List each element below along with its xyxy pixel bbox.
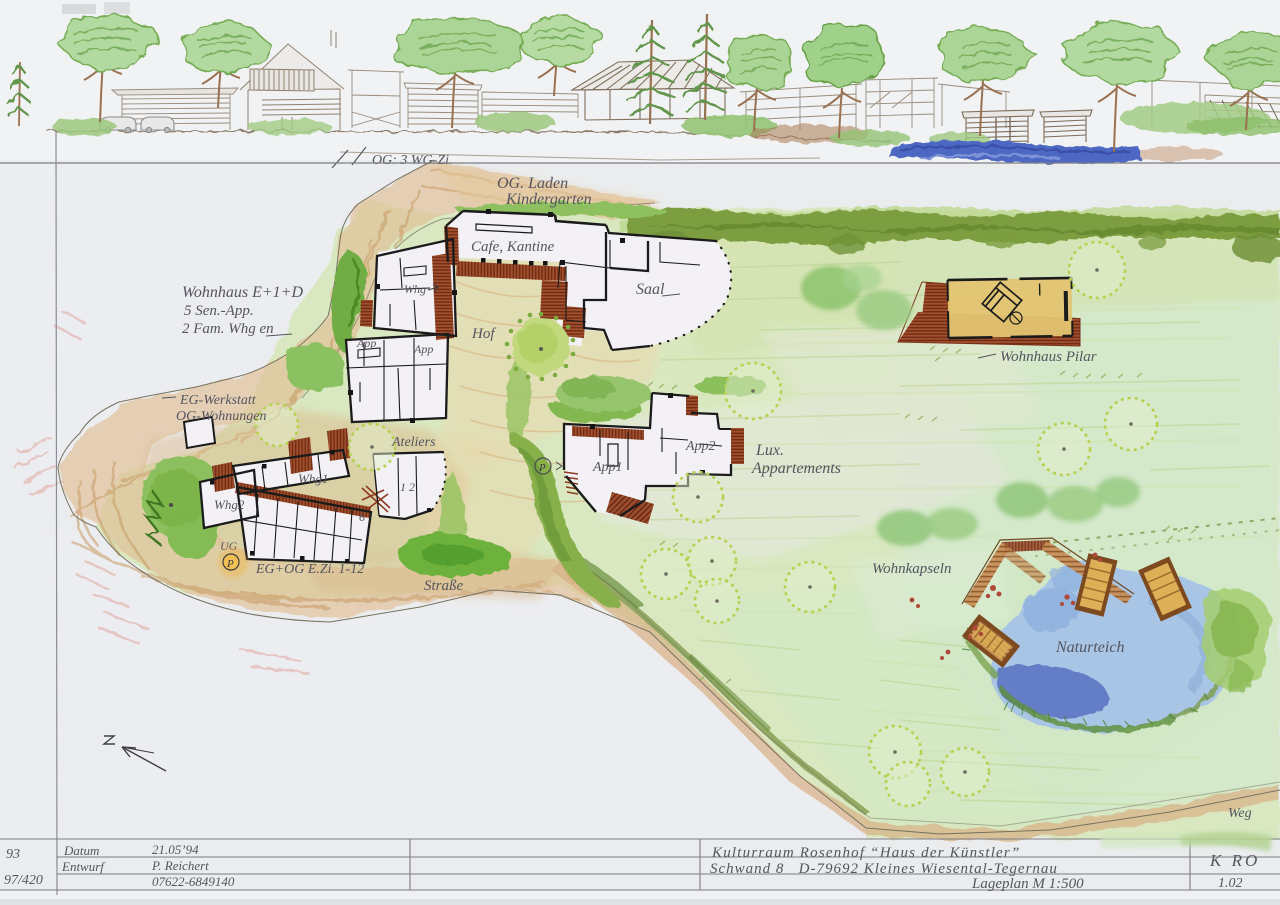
svg-text:App1: App1 xyxy=(592,460,623,475)
svg-text:Wohnhaus Pilar: Wohnhaus Pilar xyxy=(1000,349,1097,365)
svg-text:P: P xyxy=(538,462,546,474)
svg-text:App: App xyxy=(413,342,433,356)
svg-text:6: 6 xyxy=(359,510,365,524)
svg-text:Lux.: Lux. xyxy=(755,442,784,459)
svg-text:Cafe, Kantine: Cafe, Kantine xyxy=(471,239,555,255)
svg-text:Datum: Datum xyxy=(63,843,99,858)
svg-text:EG-Werkstatt: EG-Werkstatt xyxy=(179,393,257,408)
svg-text:Hof: Hof xyxy=(471,326,496,342)
svg-text:2 Fam. Whg en: 2 Fam. Whg en xyxy=(182,321,274,337)
svg-text:Kulturraum Rosenhof “Haus der: Kulturraum Rosenhof “Haus der Künstler” xyxy=(711,845,1021,861)
svg-text:P: P xyxy=(226,558,234,570)
svg-text:P. Reichert: P. Reichert xyxy=(151,858,209,873)
svg-text:EG+OG E.Zi. 1-12: EG+OG E.Zi. 1-12 xyxy=(255,562,364,577)
svg-text:Wohnkapseln: Wohnkapseln xyxy=(872,561,951,577)
svg-text:Ateliers: Ateliers xyxy=(391,435,436,450)
svg-text:Lageplan M 1:500: Lageplan M 1:500 xyxy=(971,876,1084,892)
svg-text:97/420: 97/420 xyxy=(4,873,43,888)
svg-text:21.05’94: 21.05’94 xyxy=(152,842,199,857)
svg-text:5 Sen.-App.: 5 Sen.-App. xyxy=(184,303,254,319)
svg-text:Whg: Whg xyxy=(404,282,426,296)
svg-text:Naturteich: Naturteich xyxy=(1055,639,1124,656)
svg-text:App2: App2 xyxy=(685,439,716,454)
svg-text:Weg: Weg xyxy=(1228,806,1252,821)
svg-text:Appartements: Appartements xyxy=(751,460,841,477)
svg-text:Straße: Straße xyxy=(424,578,464,594)
svg-text:Kindergarten: Kindergarten xyxy=(505,191,592,208)
svg-text:OG. Laden: OG. Laden xyxy=(497,175,568,192)
svg-text:Wohnhaus E+1+D: Wohnhaus E+1+D xyxy=(182,284,303,301)
svg-text:Schwand 8 D-79692 Kleines Wi: Schwand 8 D-79692 Kleines Wiesental-Tege… xyxy=(710,861,1058,877)
svg-text:Whg1: Whg1 xyxy=(298,471,328,486)
svg-text:93: 93 xyxy=(6,847,20,862)
svg-text:Saal: Saal xyxy=(636,281,665,298)
svg-text:1 2: 1 2 xyxy=(400,480,415,494)
svg-text:1.02: 1.02 xyxy=(1218,876,1243,891)
svg-text:Whg2: Whg2 xyxy=(214,497,245,512)
svg-text:K RO: K RO xyxy=(1209,851,1260,870)
svg-text:Entwurf: Entwurf xyxy=(61,859,106,874)
svg-text:OG-Wohnungen: OG-Wohnungen xyxy=(176,409,266,424)
svg-text:App: App xyxy=(356,336,376,350)
svg-text:OG: 3 WG-Zi.: OG: 3 WG-Zi. xyxy=(372,153,453,168)
svg-text:07622-6849140: 07622-6849140 xyxy=(152,874,235,889)
